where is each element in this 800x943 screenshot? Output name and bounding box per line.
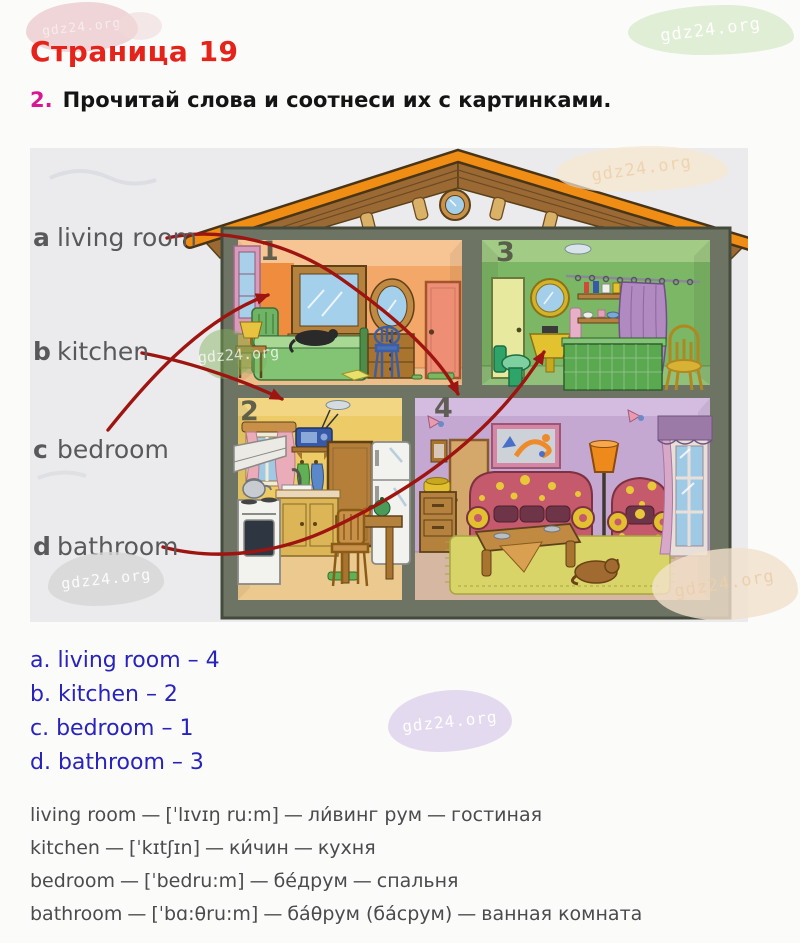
dash: — — [127, 903, 146, 925]
dash: — — [427, 804, 446, 826]
word-label: living room — [57, 223, 197, 252]
bedroom-window — [288, 266, 370, 341]
room-living — [415, 398, 712, 600]
room-number-1: 1 — [260, 236, 279, 267]
answers-block: a. living room – 4 b. kitchen – 2 c. bed… — [30, 646, 220, 782]
word-letter: c — [33, 435, 57, 464]
vocab-pronunciation: ли́винг рум — [308, 804, 422, 826]
dash: — — [284, 804, 303, 826]
answer-line: b. kitchen – 2 — [30, 680, 220, 714]
word-item-kitchen: bkitchen — [33, 337, 149, 366]
dash: — — [353, 870, 372, 892]
dash: — — [263, 903, 282, 925]
vocab-entry: bedroom—[ˈbedru:m]—бе́друм—спальня — [30, 866, 642, 899]
vocab-entry: living room—[ˈlɪvɪŋ ru:m]—ли́винг рум—го… — [30, 800, 642, 833]
living-window — [658, 416, 712, 556]
watermark-text: gdz24.org — [401, 707, 498, 736]
vocab-translation: кухня — [318, 837, 376, 859]
room-bathroom — [482, 240, 710, 390]
dash: — — [205, 837, 224, 859]
vocab-pronunciation: ба́θрум (ба́срум) — [287, 903, 452, 925]
vocab-word: kitchen — [30, 837, 100, 859]
watermark-text: gdz24.org — [660, 14, 763, 46]
towel — [570, 308, 581, 340]
answer-line: a. living room – 4 — [30, 646, 220, 680]
task-number: 2. — [30, 88, 53, 112]
word-item-bathroom: dbathroom — [33, 532, 179, 561]
task-line: 2.Прочитай слова и соотнеси их с картинк… — [30, 88, 611, 112]
exercise-figure: 1 2 3 4 gdz24.org aliving room — [30, 148, 748, 622]
ceiling-lamp — [565, 244, 591, 254]
word-item-bedroom: cbedroom — [33, 435, 169, 464]
dash: — — [250, 870, 269, 892]
wall-picture — [492, 424, 560, 468]
dash: — — [457, 903, 476, 925]
scan-artifact — [38, 472, 86, 478]
vocab-transcription: [ˈlɪvɪŋ ru:m] — [165, 804, 279, 826]
vocabulary-block: living room—[ˈlɪvɪŋ ru:m]—ли́винг рум—го… — [30, 800, 642, 932]
vocab-transcription: [ˈbɑ:θru:m] — [151, 903, 258, 925]
answer-line: c. bedroom – 1 — [30, 714, 220, 748]
task-text: Прочитай слова и соотнеси их с картинкам… — [63, 88, 612, 112]
ceiling-lamp — [326, 401, 350, 410]
answer-line: d. bathroom – 3 — [30, 748, 220, 782]
gable-window — [440, 190, 470, 220]
room-number-4: 4 — [434, 393, 453, 424]
vocab-translation: спальня — [377, 870, 459, 892]
word-label: bedroom — [57, 435, 169, 464]
watermark-cloud: gdz24.org — [388, 690, 512, 752]
vocab-translation: гостиная — [451, 804, 542, 826]
dash: — — [294, 837, 313, 859]
dash: — — [141, 804, 160, 826]
bathroom-mirror — [531, 279, 569, 317]
workbook-page: gdz24.org gdz24.org Страница 19 2.Прочит… — [0, 0, 800, 943]
vocab-translation: ванная комната — [481, 903, 642, 925]
word-label: kitchen — [57, 337, 149, 366]
page-title: Страница 19 — [30, 35, 239, 68]
word-item-living-room: aliving room — [33, 223, 197, 252]
word-letter: d — [33, 532, 57, 561]
room-number-3: 3 — [496, 237, 515, 268]
word-label: bathroom — [57, 532, 179, 561]
dash: — — [120, 870, 139, 892]
vocab-word: living room — [30, 804, 136, 826]
vocab-entry: bathroom—[ˈbɑ:θru:m]—ба́θрум (ба́срум)—в… — [30, 899, 642, 932]
vocab-pronunciation: бе́друм — [274, 870, 348, 892]
vocab-pronunciation: ки́чин — [229, 837, 289, 859]
vocab-word: bathroom — [30, 903, 122, 925]
vocab-transcription: [ˈkɪtʃɪn] — [129, 837, 200, 859]
scan-artifact — [50, 171, 156, 184]
watermark-cloud: gdz24.org — [628, 5, 794, 55]
vocab-entry: kitchen—[ˈkɪtʃɪn]—ки́чин—кухня — [30, 833, 642, 866]
word-letter: a — [33, 223, 57, 252]
vocab-word: bedroom — [30, 870, 115, 892]
vocab-transcription: [ˈbedru:m] — [144, 870, 245, 892]
dash: — — [105, 837, 124, 859]
bathtub — [562, 338, 666, 390]
word-letter: b — [33, 337, 57, 366]
room-number-2: 2 — [240, 396, 259, 427]
